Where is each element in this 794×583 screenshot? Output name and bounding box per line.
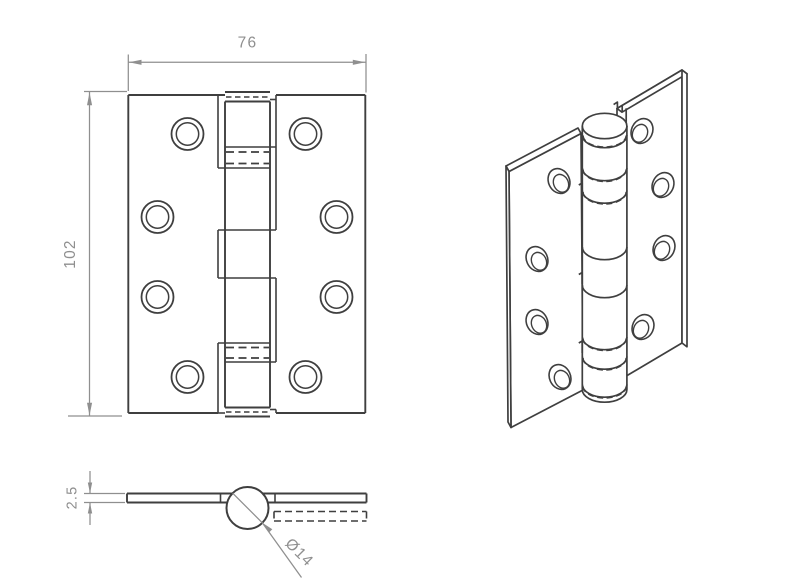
front-screw-holes-left [142,118,204,393]
dimension-width: 76 [128,35,366,93]
screw-hole [172,361,204,393]
hinge-technical-drawing-sheet: 76 102 [0,0,794,583]
arrowhead [262,523,272,533]
section-right-leaf-bar [262,494,366,503]
hinge-technical-drawing: 76 102 [0,0,794,583]
section-folded-leaf-hidden [274,512,367,522]
diameter-line [233,493,263,523]
section-left-leaf-bar [127,494,233,503]
front-knuckle-barrel [218,92,276,417]
screw-hole [172,118,204,150]
isometric-view [506,70,687,428]
front-view [128,92,365,417]
arrowhead [87,403,92,416]
screw-hole [142,281,174,313]
arrowhead [129,60,142,65]
screw-hole [321,201,353,233]
arrowhead [88,483,92,494]
screw-hole [321,281,353,313]
arrowhead [87,93,92,106]
dimension-knuckle-diameter: Ø14 [233,493,317,577]
iso-knuckle-barrel [582,113,627,402]
dim-knuckle-diameter-label: Ø14 [282,535,317,570]
iso-left-leaf [506,128,583,428]
screw-hole [290,361,322,393]
dimension-thickness: 2.5 [65,471,126,525]
arrowhead [353,60,366,65]
screw-hole [142,201,174,233]
screw-hole [290,118,322,150]
arrowhead [88,503,92,514]
front-screw-holes-right [290,118,353,393]
dim-width-label: 76 [238,35,258,52]
dim-height-label: 102 [62,239,79,268]
dim-thickness-label: 2.5 [65,486,81,510]
section-view: 2.5 Ø14 [65,471,367,578]
dimension-height: 102 [62,92,127,417]
